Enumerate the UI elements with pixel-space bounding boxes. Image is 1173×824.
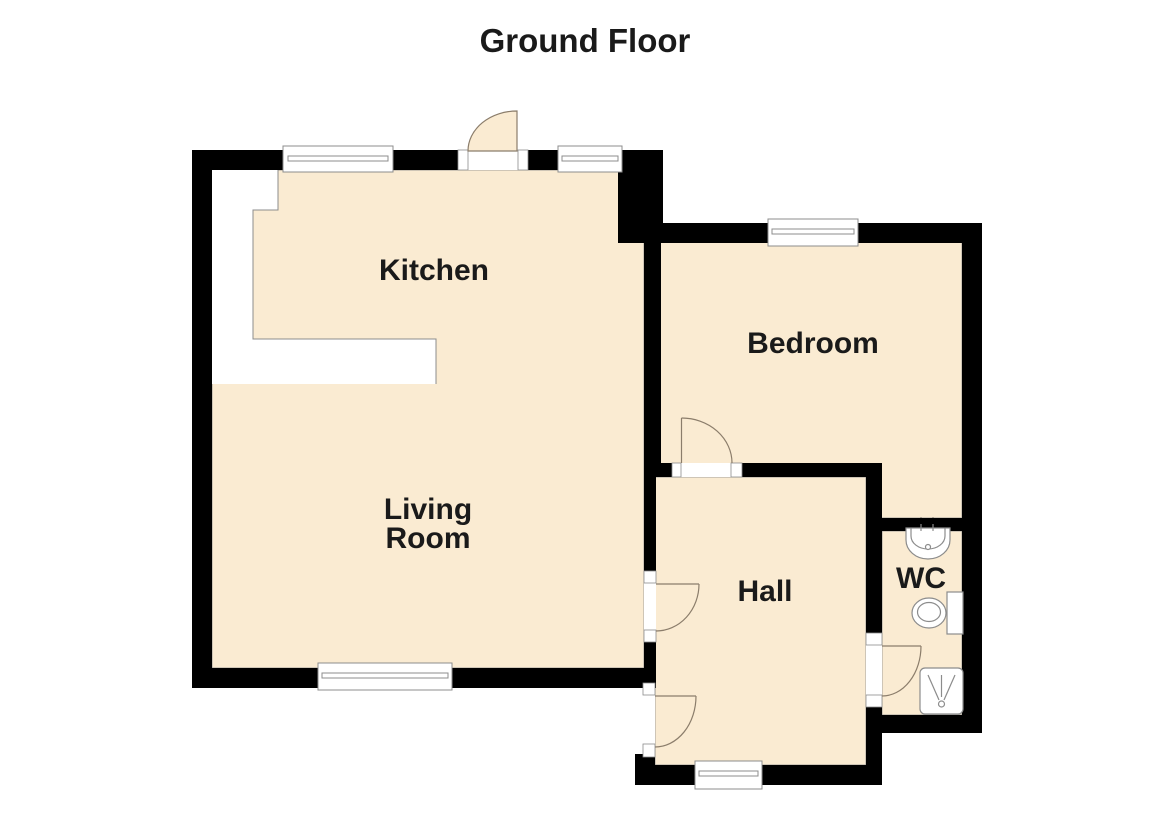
door-swing-icon-kitchen-back-door <box>458 111 528 170</box>
wall-kitchen-bedroom-divider <box>644 150 661 477</box>
living-room-label-line2: Room <box>386 522 471 555</box>
bedroom-label: Bedroom <box>747 327 879 360</box>
hall-floor <box>655 477 866 765</box>
window-icon-kitchen-left <box>283 146 393 172</box>
floor-plan: Ground Floor Kitchen Bedroom Living Room… <box>0 0 1173 824</box>
page-title: Ground Floor <box>480 22 691 59</box>
kitchen-label: Kitchen <box>379 254 489 287</box>
wall-wc-bottom <box>866 715 982 733</box>
window-icon-hall <box>695 761 762 789</box>
window-icon-kitchen-right <box>558 146 622 172</box>
wall-hall-wc-divider <box>866 463 882 785</box>
wall-left <box>192 150 212 688</box>
wall-right <box>962 223 982 733</box>
floor-plan-page: Ground Floor Kitchen Bedroom Living Room… <box>0 0 1173 824</box>
wc-label: WC <box>896 562 946 595</box>
kitchen-living-floor <box>212 170 644 668</box>
shower-tray-icon <box>920 668 963 714</box>
window-icon-bedroom <box>768 219 858 246</box>
window-icon-living-room <box>318 663 452 690</box>
hall-label: Hall <box>737 575 792 608</box>
